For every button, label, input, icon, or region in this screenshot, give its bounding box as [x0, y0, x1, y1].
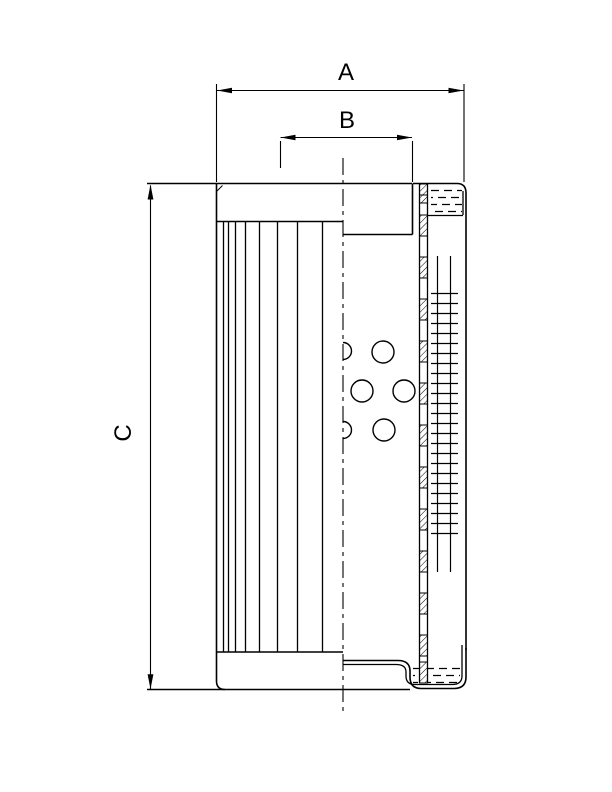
dim-c-label: C — [110, 424, 137, 441]
bottom-cap-section-inner — [343, 645, 462, 685]
top-seal-dashes — [431, 191, 462, 212]
drawing-page: A B C — [0, 0, 612, 792]
pleat-lines — [224, 222, 323, 653]
dim-a-arrow-left — [217, 88, 232, 94]
hole — [351, 380, 373, 402]
dim-b-label: B — [339, 107, 355, 134]
dim-c-arrow-top — [148, 185, 154, 200]
core-tube-section — [419, 184, 428, 683]
dim-a-arrow-right — [449, 88, 464, 94]
top-cap-section-inner — [428, 191, 463, 216]
dimension-c: C — [110, 185, 153, 690]
pleats — [224, 222, 323, 653]
filter-element-drawing: A B C — [0, 0, 612, 792]
top-cap-skirt-section — [343, 184, 413, 235]
dim-a-label: A — [338, 59, 354, 86]
perforation-holes — [343, 341, 415, 441]
dim-c-arrow-bottom — [148, 674, 154, 689]
top-cap-corner-fillet — [217, 186, 223, 192]
dim-b-arrow-right — [397, 135, 412, 141]
hole — [393, 380, 415, 402]
element-outline — [147, 184, 466, 690]
half-hole-on-centerline — [343, 422, 352, 439]
drawing-root: A B C — [110, 59, 466, 713]
dimension-b: B — [281, 107, 413, 182]
hole — [373, 419, 395, 441]
dim-b-arrow-left — [281, 135, 296, 141]
mesh-wires-horizontal — [431, 294, 458, 534]
half-hole-on-centerline — [343, 343, 352, 360]
core-tube-hatch-segments — [420, 184, 428, 683]
hole — [372, 341, 394, 363]
support-mesh — [431, 256, 458, 572]
